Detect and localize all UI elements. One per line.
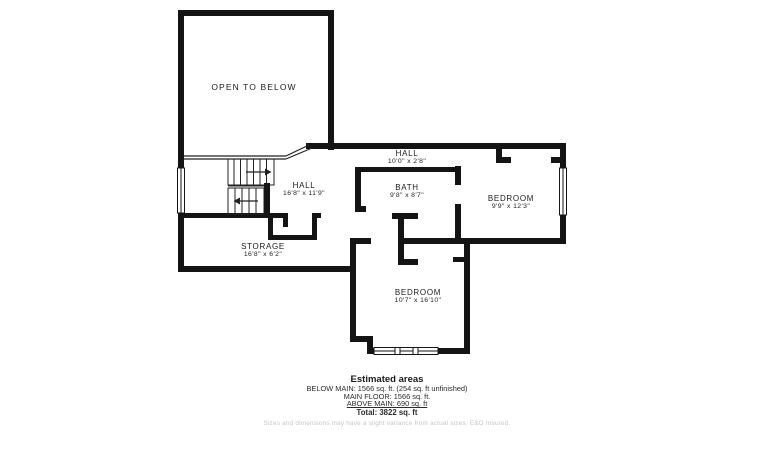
wall-bedroom-bottom-right <box>464 244 470 354</box>
wall-corner-foot <box>350 238 371 244</box>
areas-above-main: ABOVE MAIN: 690 sq. ft <box>263 400 510 408</box>
wall-storage-bottom <box>178 266 356 272</box>
room-label-bedroom-right: BEDROOM 9'9" x 12'3" <box>488 195 534 210</box>
wall-bath-right-lower <box>455 204 461 238</box>
wall-bath-left <box>355 172 361 206</box>
room-label-hall-upper: HALL 10'0" x 2'8" <box>388 150 426 165</box>
room-name: STORAGE <box>241 243 285 251</box>
window-right <box>560 168 567 215</box>
room-label-hall-main: HALL 16'8" x 11'9" <box>283 182 325 197</box>
door-jamb <box>283 218 288 227</box>
room-name: BEDROOM <box>395 289 442 297</box>
staircase <box>228 159 274 214</box>
room-label-storage: STORAGE 16'8" x 6'2" <box>241 243 285 258</box>
room-name: BEDROOM <box>488 195 534 203</box>
stair-arrow-left-icon <box>234 198 259 205</box>
wall-t-foot <box>398 259 418 265</box>
wall-storage-top-right <box>312 213 321 218</box>
wall-step-vertical <box>367 336 373 354</box>
room-dimensions: 16'8" x 6'2" <box>241 251 285 259</box>
wall-bedroom-bottom-left <box>350 244 356 342</box>
room-dimensions: 10'7" x 16'10" <box>395 297 442 305</box>
window-bottom <box>374 348 438 355</box>
wall-left-upper <box>178 10 184 168</box>
walls <box>178 10 566 354</box>
areas-total: Total: 3822 sq. ft <box>263 408 510 417</box>
room-name: HALL <box>283 182 325 190</box>
wall-left-lower <box>178 213 184 272</box>
opening-edge-lines <box>184 145 312 159</box>
room-name: BATH <box>390 184 424 192</box>
wall-t-cap <box>392 213 418 219</box>
wall-t-vertical <box>398 219 404 265</box>
door-jamb <box>453 257 464 262</box>
wall-right-above-window <box>560 149 566 168</box>
room-label-open-to-below: OPEN TO BELOW <box>211 84 296 92</box>
wall-closet-right <box>312 218 317 240</box>
room-label-bath: BATH 9'8" x 8'7" <box>390 184 424 199</box>
window-left <box>178 168 185 213</box>
room-dimensions: 10'0" x 2'8" <box>388 158 426 166</box>
room-label-bedroom-bottom: BEDROOM 10'7" x 16'10" <box>395 289 442 304</box>
estimated-areas-block: Estimated areas BELOW MAIN: 1566 sq. ft.… <box>263 375 510 427</box>
wall-closet-foot-right <box>551 157 560 163</box>
wall-right-openbelow <box>328 10 334 150</box>
wall-top-openbelow <box>178 10 334 16</box>
wall-top-section <box>306 143 566 149</box>
wall-bath-top <box>355 167 460 172</box>
room-dimensions: 16'8" x 11'9" <box>283 190 325 198</box>
room-dimensions: 9'8" x 8'7" <box>390 192 424 200</box>
stair-low-wall <box>264 183 270 214</box>
room-name: OPEN TO BELOW <box>211 84 296 92</box>
wall-closet-foot-left <box>496 157 511 163</box>
wall-section-bottom <box>403 238 566 244</box>
room-name: HALL <box>388 150 426 158</box>
wall-bath-right-upper <box>455 166 461 185</box>
door-jamb <box>355 206 366 212</box>
stair-arrow-right-icon <box>246 169 272 176</box>
floorplan-page: OPEN TO BELOW HALL 16'8" x 11'9" STORAGE… <box>0 0 770 450</box>
room-dimensions: 9'9" x 12'3" <box>488 203 534 211</box>
wall-closet-bottom <box>268 235 317 240</box>
areas-disclaimer: Sizes and dimensions may have a slight v… <box>263 420 510 427</box>
